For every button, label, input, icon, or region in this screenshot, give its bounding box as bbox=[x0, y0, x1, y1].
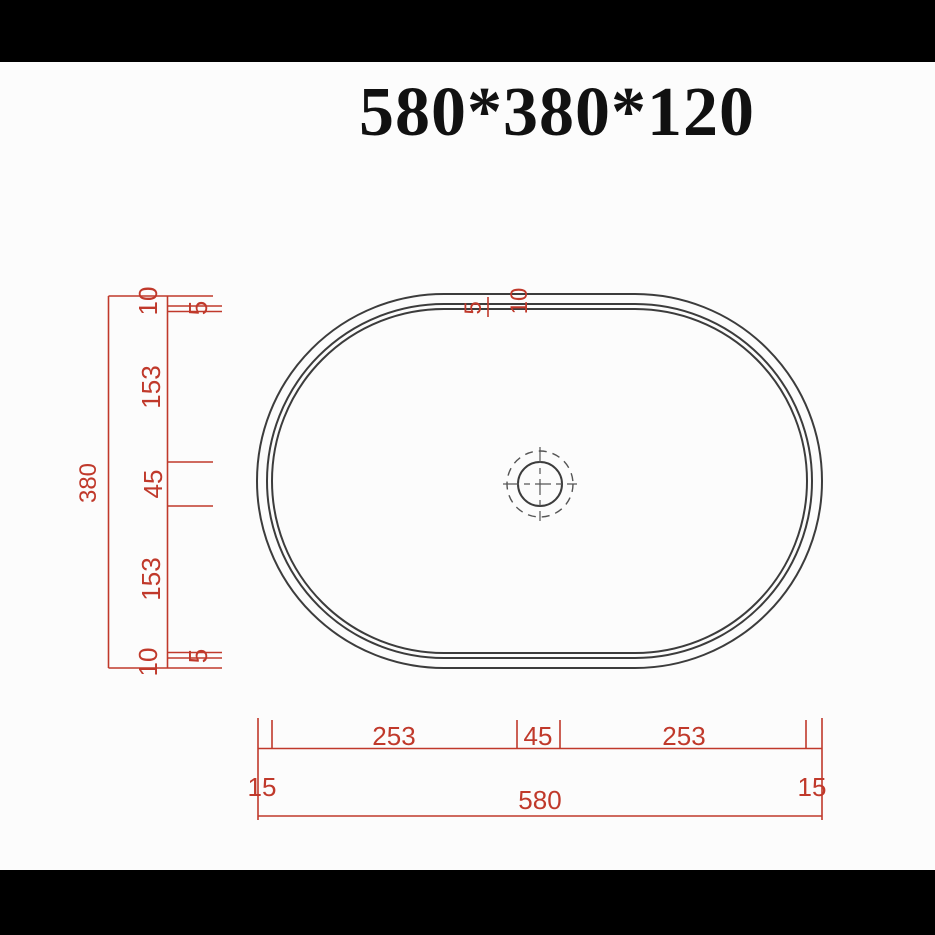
dim-label-5-bottom: 5 bbox=[185, 649, 211, 663]
dim-label-10-bottom: 10 bbox=[135, 648, 161, 677]
dim-label-153-lower: 153 bbox=[138, 557, 164, 600]
dim-label-15-left: 15 bbox=[248, 774, 277, 800]
drawing-title: 580*380*120 bbox=[359, 73, 755, 153]
dim-label-45-left: 45 bbox=[140, 470, 166, 499]
dim-label-10-top: 10 bbox=[135, 287, 161, 316]
rim-label-5: 5 bbox=[462, 301, 486, 314]
dim-label-5-top: 5 bbox=[185, 301, 211, 315]
page: 580*380*120 380 10 5 153 45 153 5 10 5 1… bbox=[0, 0, 935, 935]
dim-label-153-upper: 153 bbox=[138, 365, 164, 408]
dim-label-253-right: 253 bbox=[662, 723, 705, 749]
dim-label-253-left: 253 bbox=[372, 723, 415, 749]
dim-label-overall-height: 380 bbox=[77, 463, 101, 503]
dim-label-45-bottom: 45 bbox=[524, 723, 553, 749]
drain bbox=[503, 447, 577, 521]
rim-label-10: 10 bbox=[508, 288, 532, 315]
dim-label-overall-width: 580 bbox=[518, 787, 561, 813]
dim-label-15-right: 15 bbox=[798, 774, 827, 800]
